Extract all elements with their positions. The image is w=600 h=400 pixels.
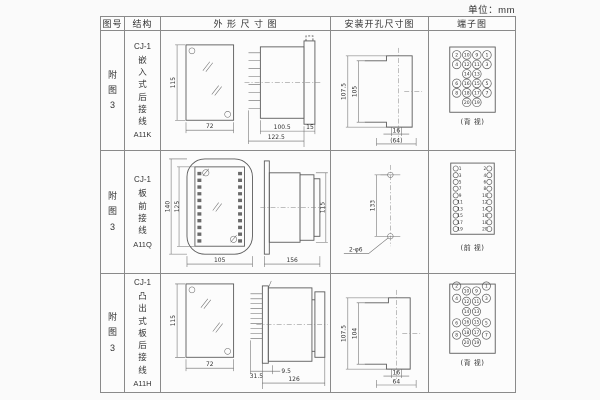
svg-text:4: 4 [455,296,458,302]
dim-front-height: 115 [170,77,177,89]
svg-text:1: 1 [485,284,488,290]
header-outline-dims: 外 形 尺 寸 图 [161,17,331,31]
dim-front-width: 72 [206,123,214,130]
dim-cutout-width: 64 [393,378,401,385]
outline-cell-a11k: 115 72 100.5 15 122.5 [161,31,331,151]
terminal-cell-a11h: (背 视) 2109141211314136161558181772019 [429,274,516,393]
svg-text:6: 6 [455,81,458,87]
svg-text:8: 8 [455,333,458,339]
terminal-diagram-a11q: (前 视) 1357911131517192468101214161820 [429,151,515,273]
install-cell-a11k: 107.5 105 16 (64) [331,31,429,151]
figure-no-label: 附图3 [107,189,118,235]
dim-body-length: 126 [288,376,300,383]
outline-drawing-a11k: 115 72 100.5 15 122.5 [161,31,330,150]
model-label: CJ-1 [134,42,151,51]
figure-no-label: 附图3 [107,68,118,114]
terminal-cell-a11k: (背 视) 2109141211314136161558181772019 [429,31,516,151]
terminal-view-caption: (背 视) [461,117,485,126]
svg-text:17: 17 [457,220,463,226]
svg-text:16: 16 [464,320,470,326]
figure-no-label: 附图3 [107,310,118,356]
svg-text:17: 17 [474,330,480,336]
terminal-diagram-a11k: (背 视) 2109141211314136161558181772019 [429,31,515,150]
outline-cell-a11q: 140 125 105 156 115 [161,151,331,274]
svg-text:14: 14 [464,309,470,315]
outline-drawing-a11q: 140 125 105 156 115 [161,151,330,273]
type-code-label: A11H [133,379,151,388]
dim-total-length: 156 [286,257,298,264]
structure-cell-a11k: CJ-1 嵌入式后接线 A11K [125,31,161,151]
svg-text:12: 12 [464,299,470,305]
svg-text:6: 6 [455,320,458,326]
mount-type-label: 嵌入式后接线 [138,54,148,128]
svg-text:9: 9 [475,289,478,295]
svg-text:9: 9 [475,53,478,59]
svg-text:11: 11 [457,200,463,206]
svg-text:2: 2 [483,166,486,172]
install-cell-a11q: 133 2-φ6 [331,151,429,274]
type-code-label: A11Q [133,240,152,249]
unit-label: 单位：mm [400,2,515,16]
svg-text:13: 13 [474,72,480,78]
header-install-dims: 安装开孔尺寸图 [331,17,429,31]
dim-hole-spacing: 133 [370,200,377,212]
outline-drawing-a11h: 115 72 31.5 9.5 126 [161,274,330,392]
structure-cell-a11q: CJ-1 板前接线 A11Q [125,151,161,274]
install-cell-a11h: 107.5 104 16 64 [331,274,429,393]
svg-text:5: 5 [459,180,462,186]
outline-cell-a11h: 115 72 31.5 9.5 126 [161,274,331,393]
header-structure: 结构 [125,17,161,31]
svg-text:11: 11 [474,62,480,68]
svg-text:8: 8 [455,91,458,97]
terminal-view-caption: (前 视) [461,243,485,252]
svg-text:3: 3 [485,62,488,68]
svg-text:15: 15 [457,213,463,219]
svg-text:15: 15 [474,81,480,87]
dim-notch-width: 16 [393,128,401,135]
dim-flange: 15 [306,124,314,131]
svg-text:10: 10 [464,53,470,59]
dim-panel-gap: 9.5 [281,368,291,375]
svg-text:7: 7 [485,91,488,97]
svg-text:6: 6 [483,180,486,186]
svg-text:12: 12 [464,62,470,68]
terminal-diagram-a11h: (背 视) 2109141211314136161558181772019 [429,274,515,392]
install-drawing-a11h: 107.5 104 16 64 [331,274,428,392]
header-terminal-diagram: 端子图 [429,17,516,31]
spec-table: 图号 结构 外 形 尺 寸 图 安装开孔尺寸图 端子图 附图3 CJ-1 嵌入式… [100,16,516,393]
svg-text:5: 5 [485,320,488,326]
svg-text:8: 8 [483,186,486,192]
svg-text:13: 13 [474,309,480,315]
svg-text:9: 9 [459,193,462,199]
figure-no-cell-a11q: 附图3 [101,151,125,274]
svg-text:11: 11 [474,299,480,305]
dim-cutout-inner-height: 105 [352,86,359,98]
svg-text:19: 19 [474,340,480,346]
svg-text:17: 17 [474,91,480,97]
svg-text:2: 2 [455,284,458,290]
dim-front-height: 115 [170,315,177,327]
dim-front-width: 72 [206,361,214,368]
svg-text:18: 18 [464,91,470,97]
dim-cutout-outer-height: 107.5 [340,325,347,342]
svg-text:3: 3 [485,296,488,302]
svg-text:5: 5 [485,81,488,87]
dim-notch-width: 16 [393,370,401,377]
mount-type-label: 凸出式板后接线 [138,290,148,376]
svg-text:2: 2 [455,53,458,59]
svg-text:4: 4 [483,173,486,179]
mount-type-label: 板前接线 [138,187,148,236]
figure-no-cell-a11h: 附图3 [101,274,125,393]
model-label: CJ-1 [134,278,151,287]
figure-no-cell-a11k: 附图3 [101,31,125,151]
model-label: CJ-1 [134,175,151,184]
svg-text:20: 20 [464,100,470,106]
svg-text:15: 15 [474,320,480,326]
svg-text:10: 10 [464,289,470,295]
dim-front-width: 105 [214,257,226,264]
dim-plate-inner-height: 125 [174,201,181,213]
svg-text:19: 19 [474,100,480,106]
svg-text:20: 20 [464,340,470,346]
svg-text:19: 19 [457,227,463,233]
dim-plate-outer-height: 140 [165,201,172,213]
svg-text:3: 3 [459,173,462,179]
svg-text:18: 18 [464,330,470,336]
install-drawing-a11q: 133 2-φ6 [331,151,428,273]
dim-cutout-inner-height: 104 [352,328,359,340]
svg-text:1: 1 [485,53,488,59]
structure-cell-a11h: CJ-1 凸出式板后接线 A11H [125,274,161,393]
svg-text:1: 1 [459,166,462,172]
dim-body-length: 100.5 [274,124,291,131]
svg-text:4: 4 [455,62,458,68]
terminal-cell-a11q: (前 视) 1357911131517192468101214161820 [429,151,516,274]
svg-text:16: 16 [464,81,470,87]
terminal-view-caption: (背 视) [461,358,485,367]
header-figure-no: 图号 [101,17,125,31]
dim-total-length: 122.5 [268,134,285,141]
dim-cutout-outer-height: 107.5 [340,83,347,100]
type-code-label: A11K [134,130,152,139]
svg-text:7: 7 [459,186,462,192]
install-drawing-a11k: 107.5 105 16 (64) [331,31,428,150]
svg-text:13: 13 [457,206,463,212]
svg-text:14: 14 [464,72,470,78]
dim-base-length: 31.5 [250,373,263,380]
dim-hole-callout: 2-φ6 [349,247,363,254]
dim-body-height: 115 [319,202,326,214]
dim-cutout-width: (64) [390,137,402,144]
svg-text:7: 7 [485,333,488,339]
